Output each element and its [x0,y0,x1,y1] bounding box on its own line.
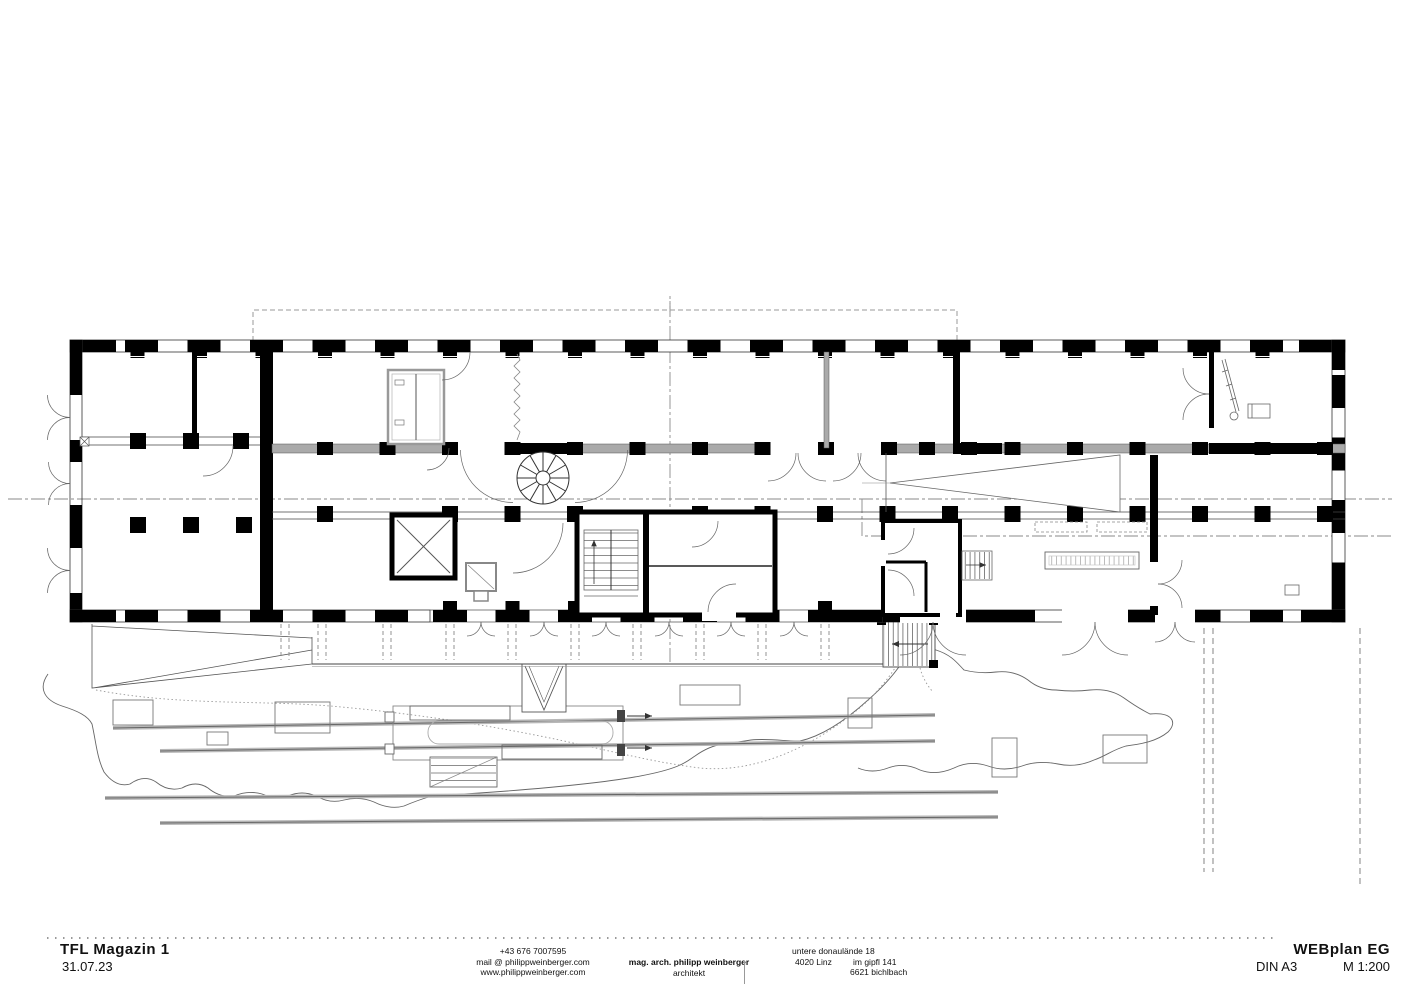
top-right-room-objects [1222,359,1270,420]
drawing-sheet: TFL Magazin 1 31.07.23 +43 676 7007595 m… [0,0,1414,1000]
wc-block [388,370,444,444]
contact-block: +43 676 7007595 mail @ philippweinberger… [440,946,626,978]
floor-plan-drawing [0,0,1414,1000]
interior-ramp-wedge [862,455,1120,512]
railway-tracks [105,715,998,823]
contact-website: www.philippweinberger.com [440,967,626,978]
east-wall [1332,340,1345,622]
site-objects [113,685,1147,777]
canopy-support-box [522,664,566,712]
contact-email: mail @ philippweinberger.com [440,957,626,968]
plan-date: 31.07.23 [62,959,113,974]
project-title: TFL Magazin 1 [60,941,170,958]
spiral-stair [517,452,569,504]
vestibule-block [881,521,960,623]
platform-stair [430,757,497,787]
contact-phone: +43 676 7007595 [440,946,626,957]
main-stair-block [577,512,775,621]
plan-name: WEBplan EG [1293,941,1390,958]
architect-role: architekt [600,968,778,979]
title-divider-dotted-line [47,937,1278,939]
right-wing-stair [962,551,992,580]
address-studio-city: 6621 bichlbach [850,967,907,977]
west-wing-partitions [80,340,273,622]
sheet-format: DIN A3 [1256,959,1297,974]
canopy-posts [281,624,829,660]
survey-dashed-lines [1204,628,1360,886]
right-dividing-wall [1150,455,1158,615]
plan-scale: M 1:200 [1343,959,1390,974]
title-block-separator [744,961,745,984]
zigzag-partition [514,354,520,440]
address-studio-street: im gipfl 141 [853,957,896,967]
architect-name: mag. arch. philipp weinberger [600,957,778,968]
right-hall-fixtures [1035,522,1299,595]
title-block: TFL Magazin 1 31.07.23 +43 676 7007595 m… [0,930,1414,1000]
west-wall [70,340,82,622]
elevator-shaft [392,515,496,601]
architect-block: mag. arch. philipp weinberger architekt [600,957,778,978]
address-office-city: 4020 Linz [795,957,832,967]
canopy-dashed-outline [253,310,957,341]
address-office-street: untere donaulände 18 [792,946,875,956]
